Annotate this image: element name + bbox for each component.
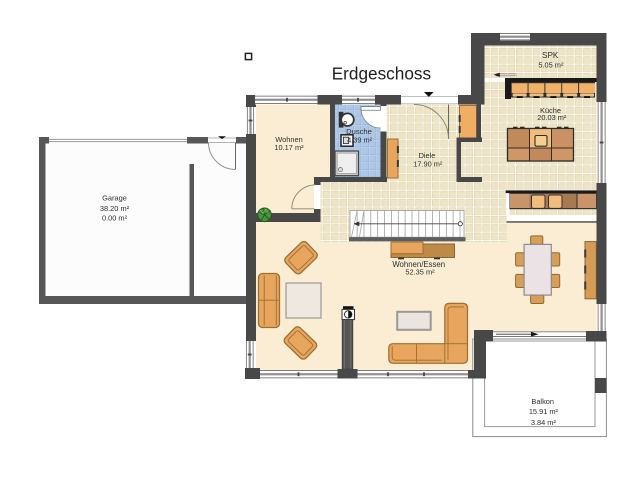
svg-text:20.03 m²: 20.03 m² [537,113,567,122]
svg-text:SPK: SPK [542,51,559,60]
svg-text:3.84 m²: 3.84 m² [531,418,557,427]
svg-text:5.05 m²: 5.05 m² [538,61,564,70]
svg-text:4.39 m²: 4.39 m² [347,135,373,144]
svg-text:38.20 m²: 38.20 m² [100,204,130,213]
svg-text:10.17 m²: 10.17 m² [274,143,304,152]
svg-text:Garage: Garage [102,194,127,203]
svg-text:0.00 m²: 0.00 m² [102,214,128,223]
svg-text:17.90 m²: 17.90 m² [413,160,443,169]
svg-text:15.91 m²: 15.91 m² [529,407,559,416]
svg-text:Balkon: Balkon [531,397,554,406]
svg-text:Erdgeschoss: Erdgeschoss [332,63,431,83]
svg-text:52.35 m²: 52.35 m² [405,268,435,277]
